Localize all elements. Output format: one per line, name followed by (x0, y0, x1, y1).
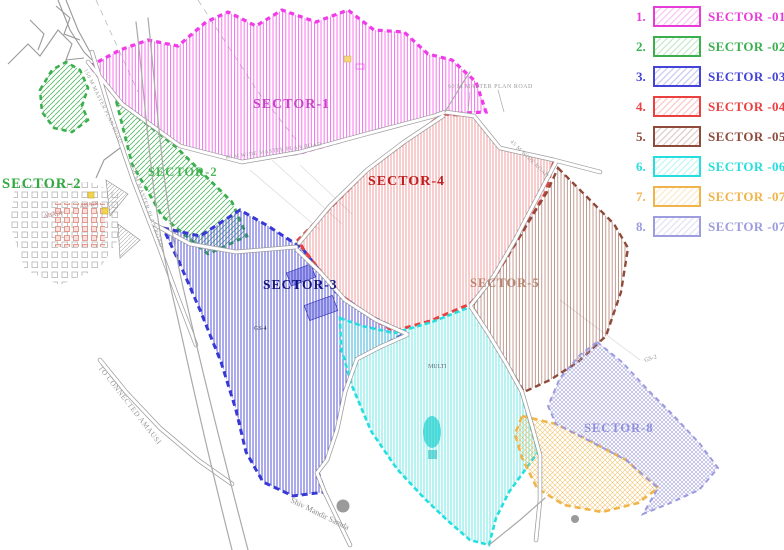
legend-label-sector-07: SECTOR -07 (708, 189, 784, 205)
multi-use-label: MULTI (428, 364, 446, 370)
legend-label-sector-04: SECTOR -04 (708, 99, 784, 115)
sector-8-label: SECTOR-8 (584, 421, 654, 435)
sector-1-label: SECTOR-1 (253, 97, 330, 112)
legend-row-4: 4. SECTOR -04 (636, 96, 784, 117)
legend-number: 6. (636, 159, 651, 175)
gs2-label: GS-2 (644, 354, 658, 364)
legend-swatch-sector-06-icon (653, 156, 701, 177)
legend-number: 7. (636, 189, 651, 205)
temple-marker (337, 500, 350, 513)
legend-swatch-sector-03-icon (653, 66, 701, 87)
abadi-grid (10, 182, 120, 285)
sector-2-left-region (40, 62, 88, 132)
legend-row-7: 7. SECTOR -07 (636, 186, 784, 207)
legend-swatch-sector-02-icon (653, 36, 701, 57)
legend-swatch-sector-05-icon (653, 126, 701, 147)
road-label-60m-callout: 60 M MASTER PLAN ROAD (448, 84, 533, 90)
legend-row-5: 5. SECTOR -05 (636, 126, 784, 147)
legend-row-2: 2. SECTOR -02 (636, 36, 784, 57)
sector-2-mid-label: SECTOR-2 (148, 165, 218, 179)
legend-number: 3. (636, 69, 651, 85)
legend-row-6: 6. SECTOR -06 (636, 156, 784, 177)
sector-4-label: SECTOR-4 (368, 174, 445, 189)
road-label-amausi: TO CONNECTED AMAUSI (96, 364, 163, 447)
legend-number: 2. (636, 39, 651, 55)
legend-label-sector-06: SECTOR -06 (708, 159, 784, 175)
legend-swatch-sector-04-icon (653, 96, 701, 117)
legend-number: 1. (636, 9, 651, 25)
map-legend: 1. SECTOR -01 2. SECTOR -02 3. SECTOR -0… (636, 6, 784, 246)
legend-number: 8. (636, 219, 651, 235)
legend-swatch-sector-07-icon (653, 186, 701, 207)
legend-row-1: 1. SECTOR -01 (636, 6, 784, 27)
gs4-label: GS-4 (254, 326, 267, 332)
legend-number: 4. (636, 99, 651, 115)
legend-label-sector-01: SECTOR -01 (708, 9, 784, 25)
sector-3-label: SECTOR-3 (263, 277, 338, 292)
legend-label-sector-05: SECTOR -05 (708, 129, 784, 145)
legend-number: 5. (636, 129, 651, 145)
legend-swatch-sector-08-icon (653, 216, 701, 237)
legend-label-sector-08: SECTOR -07 (708, 219, 784, 235)
legend-swatch-sector-01-icon (653, 6, 701, 27)
sector-plan-map: SECTOR-1 SECTOR-2 SECTOR-2 SECTOR-3 SECT… (0, 0, 784, 550)
legend-label-sector-02: SECTOR -02 (708, 39, 784, 55)
small-marker (571, 515, 579, 523)
sector-regions (40, 10, 718, 545)
legend-row-3: 3. SECTOR -03 (636, 66, 784, 87)
sector-5-label: SECTOR-5 (470, 276, 540, 290)
sector-2-left-label: SECTOR-2 (2, 176, 81, 192)
legend-label-sector-03: SECTOR -03 (708, 69, 784, 85)
legend-row-8: 8. SECTOR -07 (636, 216, 784, 237)
